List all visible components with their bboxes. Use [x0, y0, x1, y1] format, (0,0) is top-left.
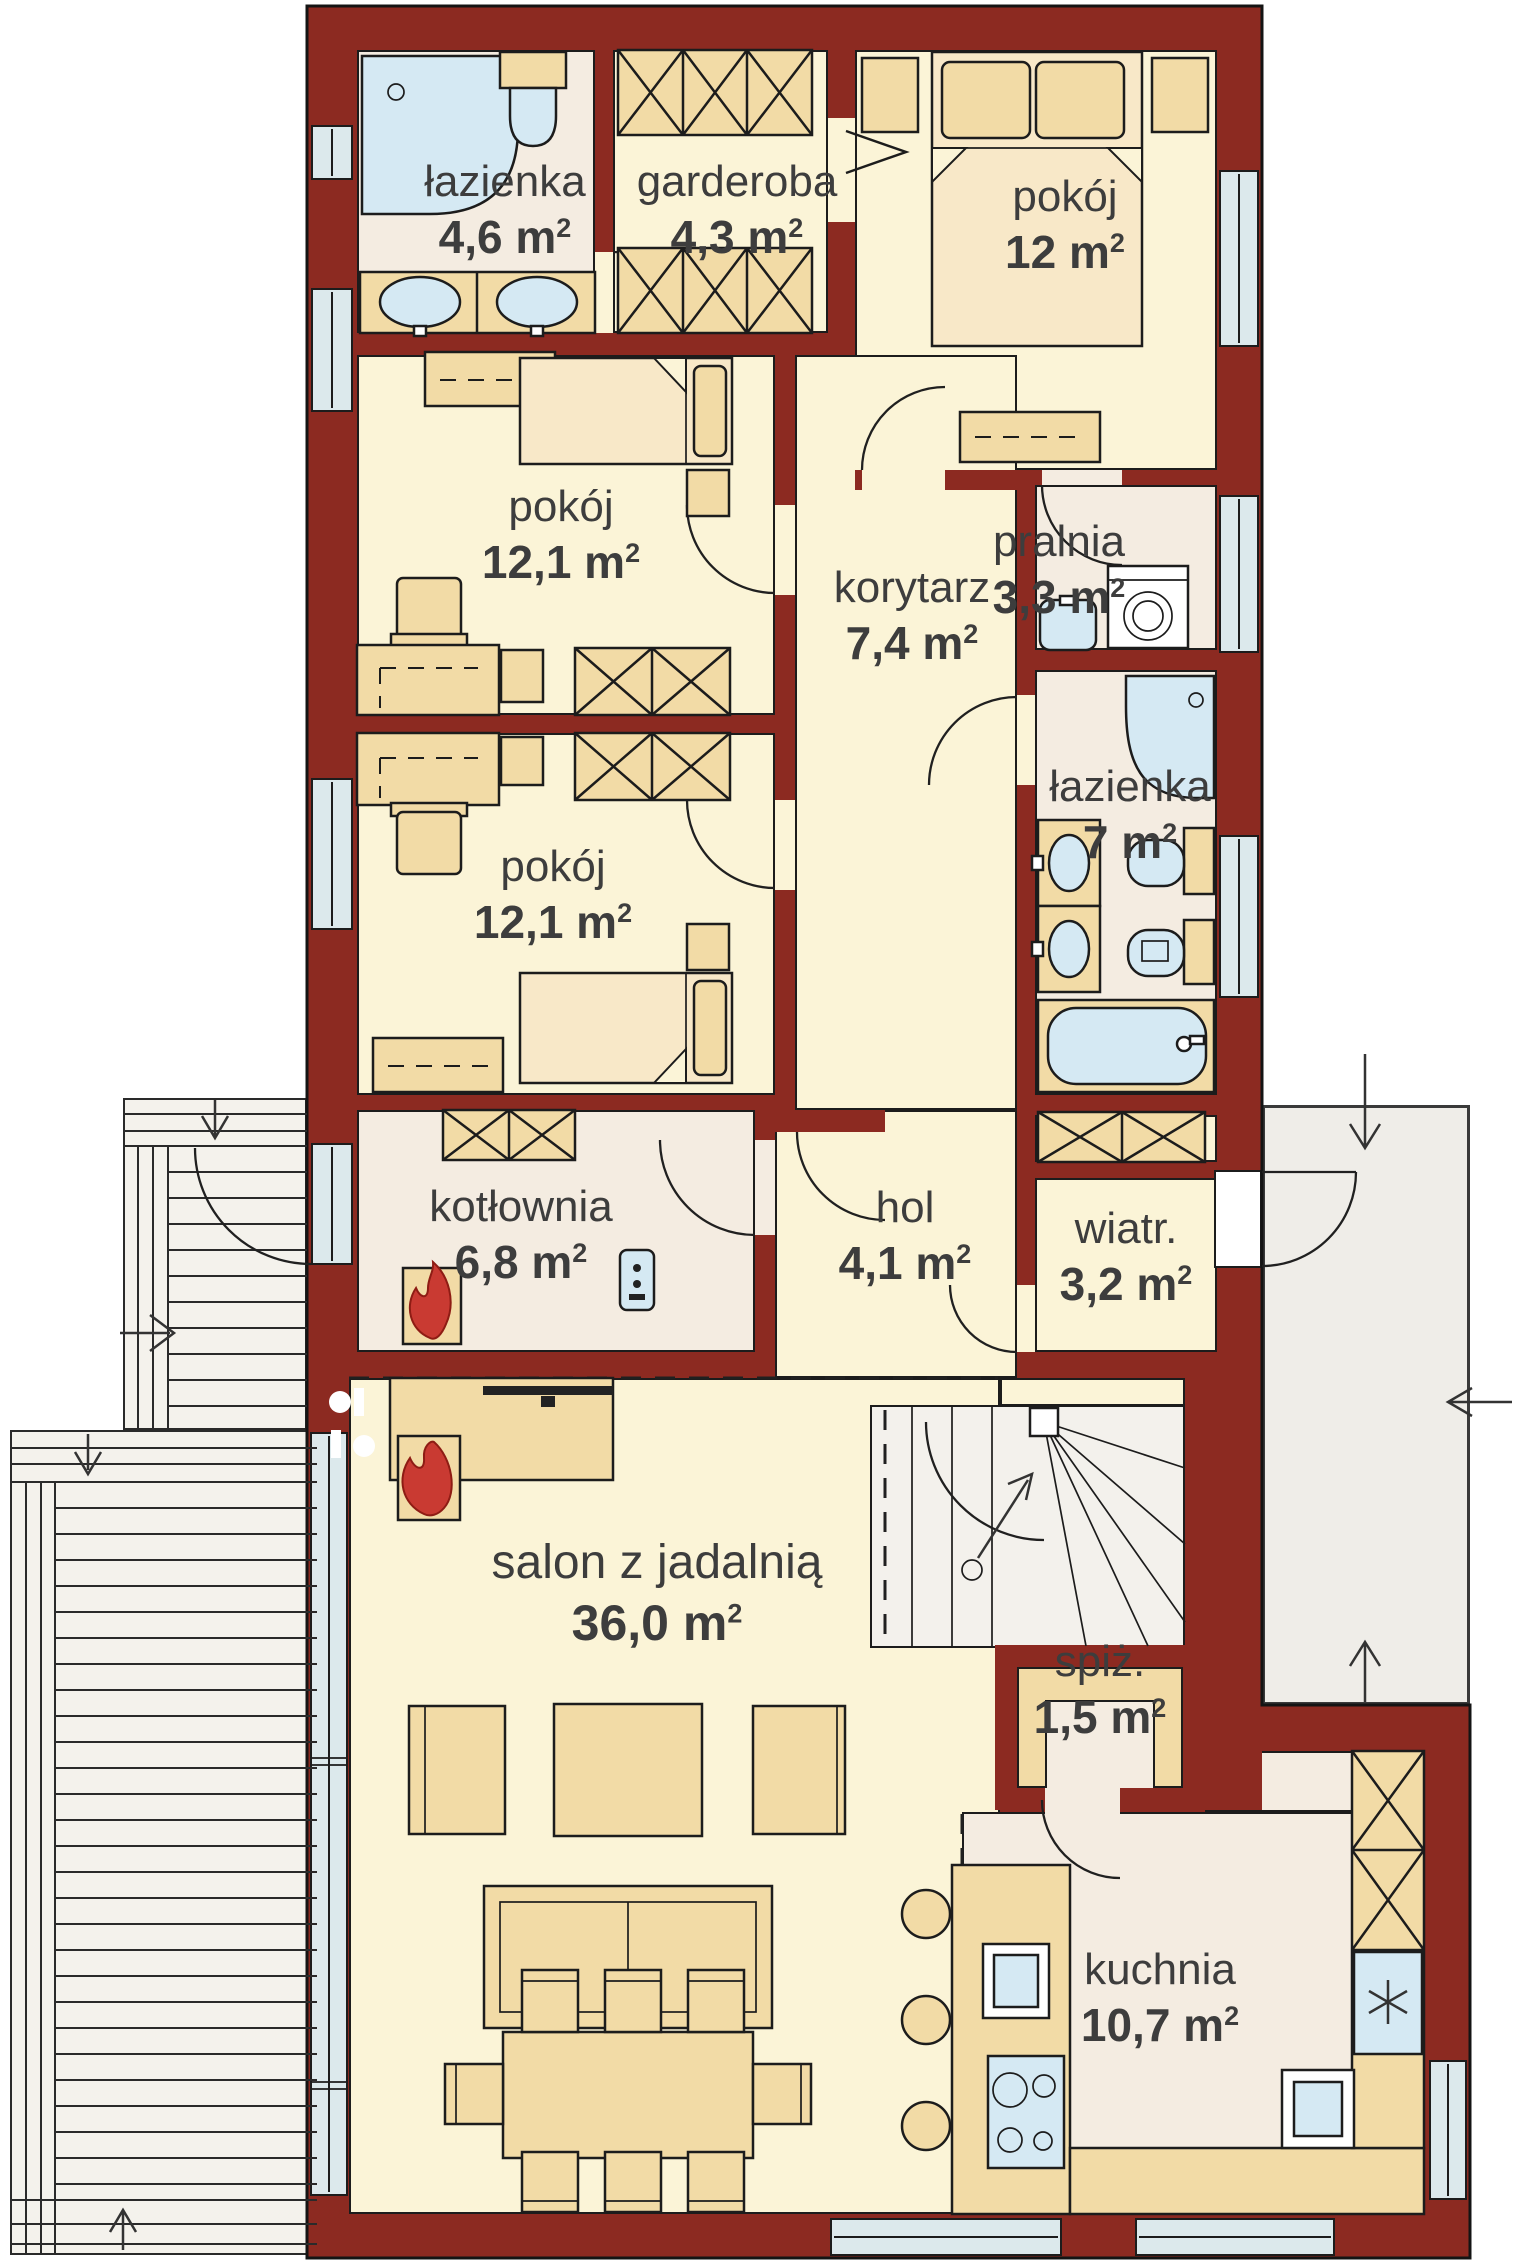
label-vestibule: wiatr. 3,2 m2	[1060, 1202, 1193, 1312]
label-wardrobe: garderoba 4,3 m2	[637, 155, 838, 265]
door-gap-bathroom-lower	[1017, 695, 1035, 785]
label-boiler-room: kotłownia 6,8 m2	[429, 1180, 612, 1290]
window-laundry	[1219, 495, 1259, 653]
window-bedroom-12	[1219, 170, 1259, 347]
window-living-west	[310, 1432, 348, 2196]
door-gap-vestibule-hall	[1017, 1285, 1035, 1352]
window-bathroom-lower	[1219, 835, 1259, 998]
window-bathroom-upper	[311, 125, 353, 180]
label-corridor: korytarz 7,4 m2	[834, 561, 990, 671]
door-boiler-deck	[311, 1143, 353, 1265]
wall-stub-hall	[775, 1110, 885, 1132]
window-kitchen-south	[1135, 2218, 1335, 2256]
label-bedroom-b: pokój 12,1 m2	[474, 840, 632, 950]
floor-closet-nook	[1035, 1115, 1217, 1162]
door-gap-bathroom-upper	[595, 252, 613, 333]
door-gap-bedroom-a	[775, 505, 795, 595]
label-bedroom-12: pokój 12 m2	[1005, 170, 1125, 280]
window-kitchen-east	[1429, 2060, 1467, 2200]
lower-terrace	[10, 1430, 317, 2255]
door-gap-boiler	[755, 1140, 775, 1235]
label-living-room: salon z jadalnią 36,0 m2	[492, 1534, 823, 1654]
floor-corridor	[795, 355, 1017, 1110]
floor-plan: łazienka 4,6 m2 garderoba 4,3 m2 pokój 1…	[0, 0, 1520, 2264]
staircase	[870, 1405, 1185, 1648]
floor-living-room-2	[1000, 1378, 1185, 1406]
entrance-door-gap	[1214, 1170, 1262, 1268]
door-gap-laundry	[1042, 470, 1122, 485]
label-hall: hol 4,1 m2	[839, 1181, 972, 1291]
label-kitchen: kuchnia 10,7 m2	[1081, 1943, 1239, 2053]
label-pantry: spiż. 1,5 m2	[1034, 1635, 1167, 1745]
wall-under-bedroom12-a	[855, 470, 862, 490]
window-living-south	[830, 2218, 1062, 2256]
label-bathroom-lower: łazienka 7 m2	[1049, 760, 1210, 870]
window-bedroom-b	[311, 778, 353, 930]
entrance-porch	[1262, 1105, 1470, 1705]
upper-deck	[123, 1098, 307, 1430]
door-gap-bedroom-b	[775, 800, 795, 890]
label-laundry: pralnia 3,3 m2	[993, 515, 1126, 625]
floor-bathroom-lower	[1035, 670, 1217, 1095]
wall-under-bedroom12-b	[945, 470, 1017, 490]
label-bedroom-a: pokój 12,1 m2	[482, 480, 640, 590]
window-bedroom-a	[311, 288, 353, 412]
pantry-wall-bottom	[1120, 1788, 1205, 1810]
pantry-door-gap	[1045, 1788, 1120, 1814]
label-bathroom-upper: łazienka 4,6 m2	[424, 155, 585, 265]
